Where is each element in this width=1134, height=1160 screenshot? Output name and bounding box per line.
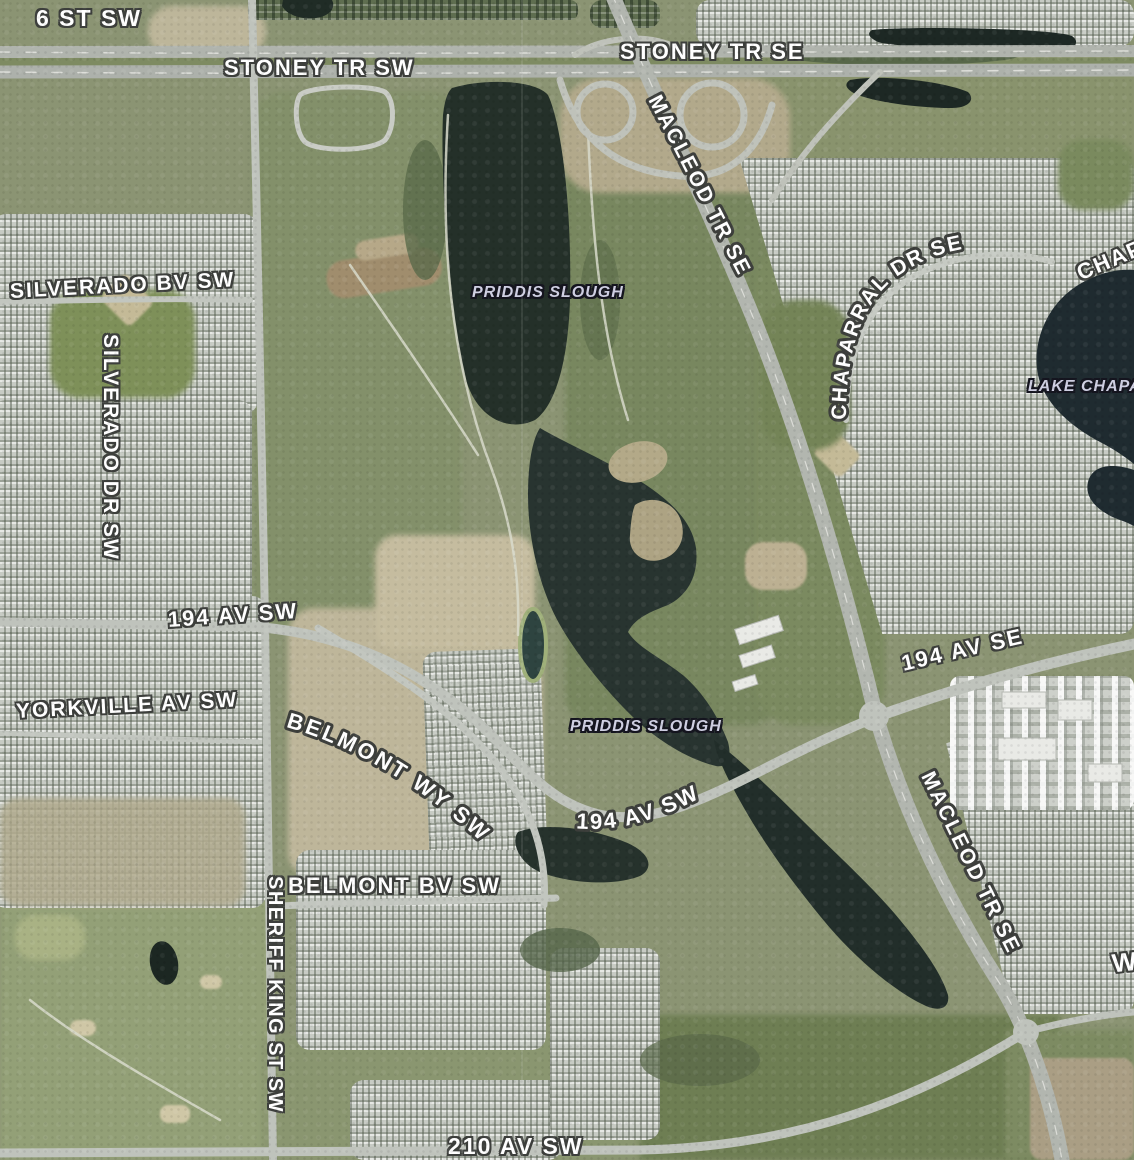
road-194-av xyxy=(258,627,876,817)
road-210-av-east xyxy=(1026,1012,1134,1032)
water-golf-pond xyxy=(146,939,181,987)
intersection xyxy=(859,701,889,731)
racetrack-loop xyxy=(296,87,392,149)
label-6-st-sw: 6 ST SW xyxy=(36,6,142,31)
label-stoney-tr-se: STONEY TR SE xyxy=(620,40,805,64)
trail xyxy=(30,1000,220,1120)
water-bodies xyxy=(146,0,1134,1009)
road-belmont-bv xyxy=(278,898,556,906)
label-priddis-slough-north: PRIDDIS SLOUGH xyxy=(472,284,624,302)
label-stoney-tr-sw: STONEY TR SW xyxy=(224,56,415,80)
satellite-map-viewport[interactable]: MACLEOD TR SE MACLEOD TR SE BELMONT WY S… xyxy=(0,0,1134,1160)
svg-text:194 AV SW: 194 AV SW xyxy=(576,780,703,835)
interchange-loop xyxy=(680,83,744,147)
imagery-tile-seam xyxy=(521,0,523,1160)
road-belmont-wy xyxy=(318,628,544,905)
label-210-av-sw: 210 AV SW xyxy=(448,1134,584,1159)
label-sheriff-king-st-sw: SHERIFF KING ST SW xyxy=(264,876,286,1113)
interchange-ramp xyxy=(772,72,880,200)
label-lake-chaparral: LAKE CHAPA xyxy=(1028,378,1134,396)
bigbox-building xyxy=(998,738,1056,760)
label-silverado-dr-sw: SILVERADO DR SW xyxy=(99,334,122,561)
label-chaparral-dr-se: CHAPARRAL DR SE xyxy=(828,231,965,420)
map-features-overlay: MACLEOD TR SE MACLEOD TR SE BELMONT WY S… xyxy=(0,0,1134,1160)
water-storm-pond xyxy=(520,609,546,681)
svg-text:CHAPARRAL DR SE: CHAPARRAL DR SE xyxy=(828,231,965,420)
intersection xyxy=(1013,1019,1039,1045)
label-macleod-tr-se-north: MACLEOD TR SE xyxy=(644,91,756,279)
bigbox-building xyxy=(1002,692,1046,708)
industrial-building xyxy=(739,645,775,668)
water-priddis-slough-north xyxy=(442,82,570,425)
water-lake-chaparral xyxy=(1037,270,1134,464)
water-pond-top-edge xyxy=(282,0,333,18)
industrial-building xyxy=(735,615,784,644)
water-lake-chaparral-arm xyxy=(1087,466,1134,526)
bigbox-building xyxy=(1088,764,1122,782)
svg-text:MACLEOD TR SE: MACLEOD TR SE xyxy=(644,91,756,279)
road-yorkville-av xyxy=(0,733,258,742)
label-priddis-slough-south: PRIDDIS SLOUGH xyxy=(570,718,722,736)
bigbox-building xyxy=(1058,700,1092,720)
label-194-av-sw-center: 194 AV SW xyxy=(576,780,703,835)
label-belmont-bv-sw: BELMONT BV SW xyxy=(288,874,501,898)
label-w-partial: W xyxy=(1111,947,1134,978)
industrial-building xyxy=(732,675,758,692)
